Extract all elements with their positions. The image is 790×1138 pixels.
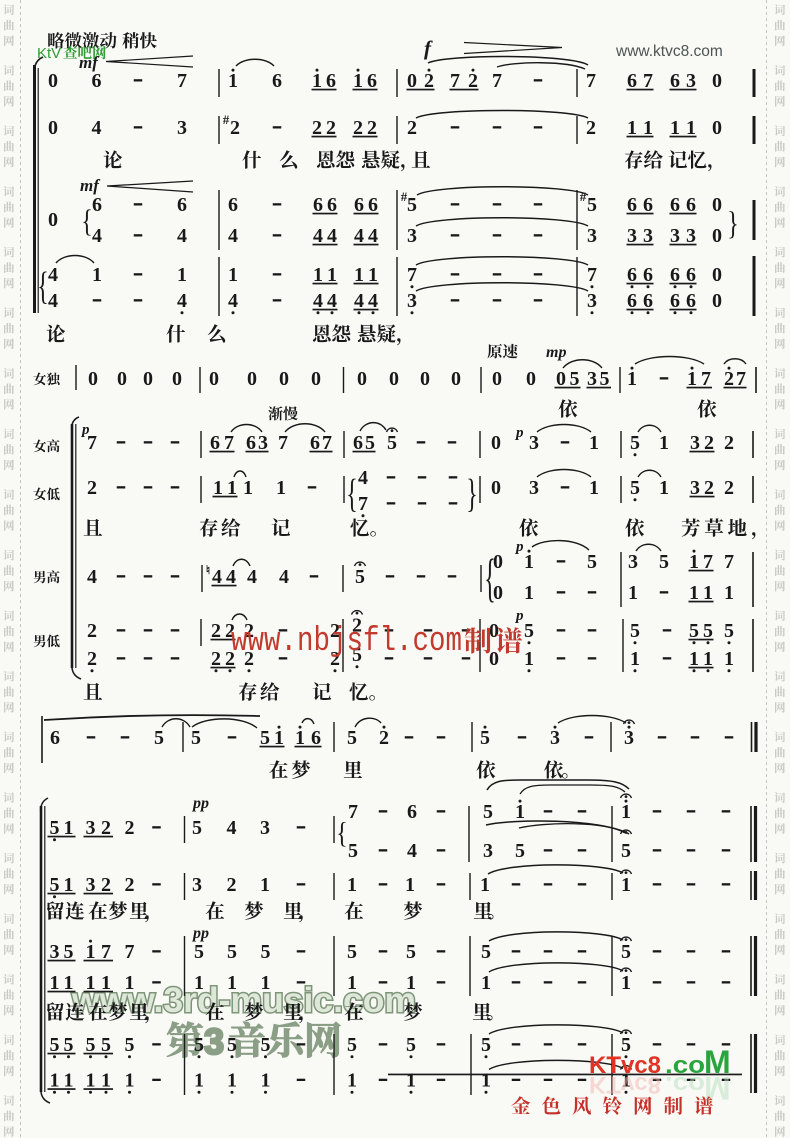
svg-text:2: 2 xyxy=(87,477,97,499)
svg-text:7: 7 xyxy=(125,941,135,963)
svg-text:1: 1 xyxy=(177,264,187,286)
svg-text:0: 0 xyxy=(420,368,430,390)
svg-text:2: 2 xyxy=(227,874,237,896)
svg-text:mf: mf xyxy=(80,176,101,195)
svg-text:0: 0 xyxy=(311,368,321,390)
svg-text:1: 1 xyxy=(659,477,669,499)
svg-text:5: 5 xyxy=(621,941,631,963)
svg-text:5: 5 xyxy=(621,840,631,862)
svg-text:5: 5 xyxy=(194,1034,204,1056)
svg-text:0: 0 xyxy=(389,368,399,390)
svg-text:p: p xyxy=(514,539,524,555)
svg-text:5: 5 xyxy=(192,817,202,839)
svg-text:2: 2 xyxy=(125,817,135,839)
svg-text:5: 5 xyxy=(355,566,365,588)
svg-text:2: 2 xyxy=(586,117,596,139)
svg-text:4: 4 xyxy=(92,225,102,247)
svg-text:0: 0 xyxy=(491,477,501,499)
svg-text:1: 1 xyxy=(227,972,237,994)
svg-text:1: 1 xyxy=(92,264,102,286)
svg-text:0: 0 xyxy=(712,290,722,312)
svg-text:5: 5 xyxy=(348,840,358,862)
svg-text:5: 5 xyxy=(227,1034,237,1056)
svg-text:5: 5 xyxy=(154,727,164,749)
svg-text:7: 7 xyxy=(177,70,187,92)
svg-text:{: { xyxy=(346,471,358,516)
svg-text:5: 5 xyxy=(630,620,640,642)
svg-text:7: 7 xyxy=(407,264,417,286)
svg-text:4: 4 xyxy=(247,566,257,588)
svg-text:0: 0 xyxy=(526,368,536,390)
svg-text:7: 7 xyxy=(724,551,734,573)
svg-text:3: 3 xyxy=(483,840,493,862)
svg-text:2: 2 xyxy=(724,477,734,499)
svg-text:1: 1 xyxy=(724,648,734,670)
svg-text:p: p xyxy=(514,425,524,441)
svg-text:5: 5 xyxy=(483,801,493,823)
svg-text:6: 6 xyxy=(228,194,238,216)
svg-text:0: 0 xyxy=(88,368,98,390)
svg-text:2: 2 xyxy=(125,874,135,896)
svg-text:1: 1 xyxy=(227,1070,237,1092)
svg-text:1: 1 xyxy=(260,874,270,896)
svg-text:pp: pp xyxy=(191,925,209,942)
svg-text:5: 5 xyxy=(515,840,525,862)
svg-text:pp: pp xyxy=(191,795,209,812)
svg-text:4: 4 xyxy=(87,566,97,588)
svg-text:5: 5 xyxy=(347,1034,357,1056)
svg-text:4: 4 xyxy=(177,290,187,312)
svg-text:0: 0 xyxy=(247,368,257,390)
svg-text:7: 7 xyxy=(278,432,288,454)
svg-text:4: 4 xyxy=(92,117,102,139)
svg-text:5: 5 xyxy=(261,1034,271,1056)
svg-text:1: 1 xyxy=(347,972,357,994)
svg-text:0: 0 xyxy=(712,194,722,216)
svg-text:5: 5 xyxy=(406,1034,416,1056)
svg-text:0: 0 xyxy=(712,225,722,247)
svg-text:6: 6 xyxy=(92,70,102,92)
svg-text:4: 4 xyxy=(48,264,58,286)
svg-text:1: 1 xyxy=(261,1070,271,1092)
svg-text:4: 4 xyxy=(228,225,238,247)
svg-text:0: 0 xyxy=(491,432,501,454)
svg-text:5: 5 xyxy=(261,941,271,963)
svg-text:5: 5 xyxy=(194,941,204,963)
svg-text:1: 1 xyxy=(125,1070,135,1092)
svg-text:5: 5 xyxy=(587,194,597,216)
svg-text:0: 0 xyxy=(209,368,219,390)
svg-text:1: 1 xyxy=(261,972,271,994)
svg-text:4: 4 xyxy=(227,817,237,839)
svg-text:mp: mp xyxy=(546,344,566,361)
svg-text:1: 1 xyxy=(621,801,631,823)
svg-text:1: 1 xyxy=(347,874,357,896)
svg-text:7: 7 xyxy=(492,70,502,92)
svg-text:1: 1 xyxy=(194,972,204,994)
svg-text:1: 1 xyxy=(406,1070,416,1092)
svg-text:1: 1 xyxy=(405,874,415,896)
svg-text:2: 2 xyxy=(407,117,417,139)
svg-text:0: 0 xyxy=(48,117,58,139)
svg-text:3: 3 xyxy=(407,225,417,247)
svg-text:5: 5 xyxy=(406,941,416,963)
svg-text:1: 1 xyxy=(524,648,534,670)
svg-text:1: 1 xyxy=(480,874,490,896)
svg-text:}: } xyxy=(466,471,478,516)
svg-text:0: 0 xyxy=(357,368,367,390)
svg-text:3: 3 xyxy=(529,477,539,499)
svg-text:5: 5 xyxy=(630,477,640,499)
svg-text:1: 1 xyxy=(524,582,534,604)
svg-text:1: 1 xyxy=(515,801,525,823)
svg-text:0: 0 xyxy=(712,117,722,139)
svg-text:1: 1 xyxy=(194,1070,204,1092)
svg-text:5: 5 xyxy=(481,941,491,963)
svg-text:0: 0 xyxy=(489,620,499,642)
svg-text:3: 3 xyxy=(587,290,597,312)
svg-text:3: 3 xyxy=(587,225,597,247)
svg-text:KTvc8: KTvc8 xyxy=(589,1071,661,1098)
svg-text:0: 0 xyxy=(143,368,153,390)
svg-text:0: 0 xyxy=(493,551,503,573)
svg-text:1: 1 xyxy=(243,477,253,499)
svg-text:.co: .co xyxy=(665,1071,705,1098)
svg-text:1: 1 xyxy=(621,972,631,994)
svg-text:1: 1 xyxy=(481,1070,491,1092)
svg-text:2: 2 xyxy=(87,620,97,642)
svg-text:4: 4 xyxy=(358,467,368,489)
svg-text:2: 2 xyxy=(230,117,240,139)
svg-text:7: 7 xyxy=(586,70,596,92)
svg-text:0: 0 xyxy=(48,70,58,92)
svg-text:2: 2 xyxy=(87,648,97,670)
svg-text:5: 5 xyxy=(480,727,490,749)
svg-text:4: 4 xyxy=(48,290,58,312)
svg-text:1: 1 xyxy=(228,70,238,92)
svg-text:5: 5 xyxy=(125,1034,135,1056)
svg-text:6: 6 xyxy=(407,801,417,823)
svg-text:2: 2 xyxy=(379,727,389,749)
svg-text:0: 0 xyxy=(117,368,127,390)
svg-text:0: 0 xyxy=(489,648,499,670)
svg-text:0: 0 xyxy=(493,582,503,604)
svg-text:5: 5 xyxy=(724,620,734,642)
svg-text:www.nbjsfl.com: www.nbjsfl.com xyxy=(231,623,462,661)
svg-text:2: 2 xyxy=(724,432,734,454)
svg-text:1: 1 xyxy=(406,972,416,994)
svg-text:3: 3 xyxy=(260,817,270,839)
svg-text:5: 5 xyxy=(481,1034,491,1056)
svg-text:5: 5 xyxy=(227,941,237,963)
svg-text:1: 1 xyxy=(524,551,534,573)
svg-text:1: 1 xyxy=(589,432,599,454)
svg-text:1: 1 xyxy=(589,477,599,499)
svg-text:7: 7 xyxy=(87,432,97,454)
svg-text:3: 3 xyxy=(624,727,634,749)
svg-text:5: 5 xyxy=(191,727,201,749)
svg-text:5: 5 xyxy=(630,432,640,454)
svg-text:5: 5 xyxy=(587,551,597,573)
svg-text:0: 0 xyxy=(48,209,58,231)
svg-text:5: 5 xyxy=(659,551,669,573)
svg-text:1: 1 xyxy=(621,874,631,896)
svg-text:0: 0 xyxy=(451,368,461,390)
svg-text:4: 4 xyxy=(279,566,289,588)
svg-text:6: 6 xyxy=(50,727,60,749)
svg-text:#: # xyxy=(223,112,230,127)
svg-text:#: # xyxy=(580,189,587,204)
svg-text:4: 4 xyxy=(177,225,187,247)
svg-text:KtV: KtV xyxy=(37,45,61,62)
svg-text:3: 3 xyxy=(550,727,560,749)
svg-text:1: 1 xyxy=(347,1070,357,1092)
svg-text:4: 4 xyxy=(228,290,238,312)
svg-text:6: 6 xyxy=(272,70,282,92)
svg-text:1: 1 xyxy=(659,432,669,454)
svg-text:1: 1 xyxy=(724,582,734,604)
svg-text:1: 1 xyxy=(276,477,286,499)
svg-text:5: 5 xyxy=(524,620,534,642)
svg-text:3: 3 xyxy=(628,551,638,573)
svg-text:3: 3 xyxy=(177,117,187,139)
svg-text:3: 3 xyxy=(529,432,539,454)
svg-text:0: 0 xyxy=(712,70,722,92)
svg-text:1: 1 xyxy=(628,582,638,604)
svg-text:5: 5 xyxy=(347,727,357,749)
svg-text:5: 5 xyxy=(347,941,357,963)
svg-text:0: 0 xyxy=(172,368,182,390)
svg-text:3: 3 xyxy=(407,290,417,312)
svg-text:p: p xyxy=(514,608,524,624)
svg-text:♮: ♮ xyxy=(206,563,210,577)
svg-text:1: 1 xyxy=(630,648,640,670)
svg-text:5: 5 xyxy=(387,432,397,454)
svg-text:3: 3 xyxy=(192,874,202,896)
svg-text:0: 0 xyxy=(279,368,289,390)
svg-text:www.ktvc8.com: www.ktvc8.com xyxy=(615,43,723,60)
svg-text:7: 7 xyxy=(358,493,368,515)
svg-text:1: 1 xyxy=(481,972,491,994)
svg-text:7: 7 xyxy=(348,801,358,823)
svg-text:0: 0 xyxy=(492,368,502,390)
svg-text:5: 5 xyxy=(407,194,417,216)
svg-text:0: 0 xyxy=(712,264,722,286)
svg-text:1: 1 xyxy=(228,264,238,286)
svg-text:7: 7 xyxy=(587,264,597,286)
svg-text:4: 4 xyxy=(407,840,417,862)
svg-text:1: 1 xyxy=(125,972,135,994)
svg-text:{: { xyxy=(336,816,348,849)
svg-text:6: 6 xyxy=(177,194,187,216)
svg-text:6: 6 xyxy=(92,194,102,216)
svg-text:1: 1 xyxy=(627,368,637,390)
svg-text:}: } xyxy=(727,205,739,242)
svg-text:3: 3 xyxy=(204,1021,224,1062)
